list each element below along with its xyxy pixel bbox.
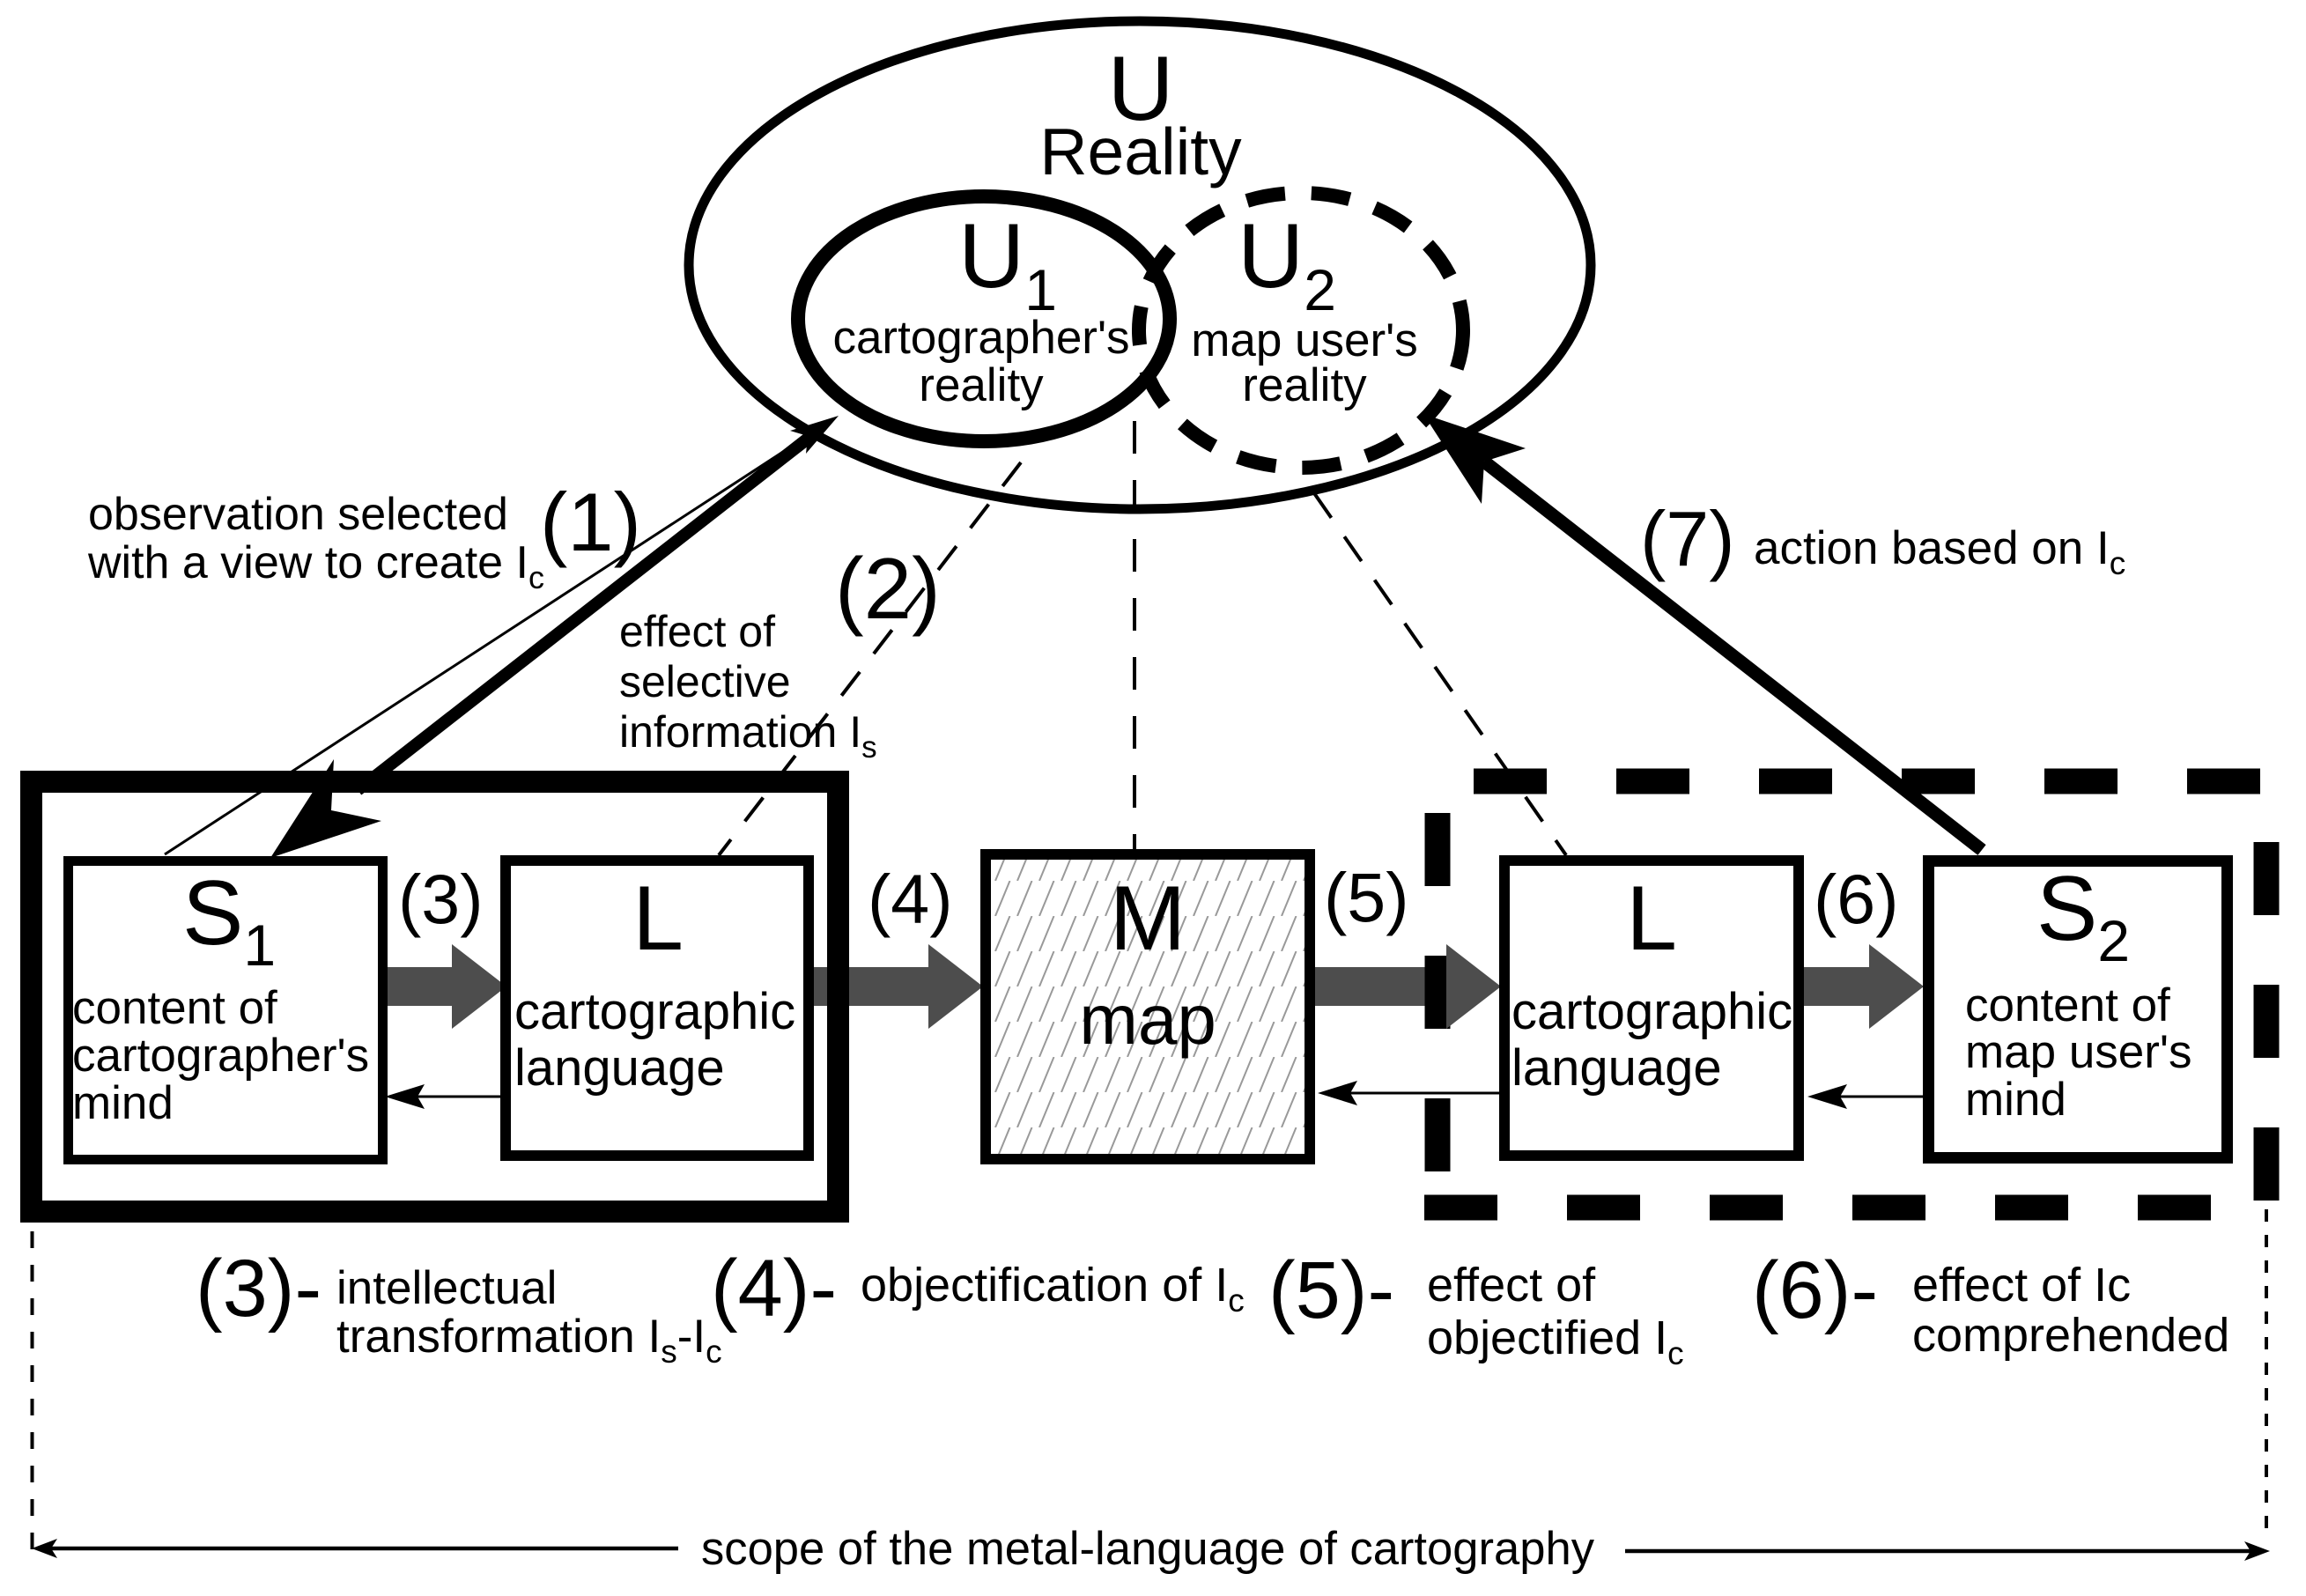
svg-text:effect of: effect of [1427, 1259, 1596, 1312]
svg-text:(5): (5) [1324, 858, 1409, 936]
svg-text:content of: content of [72, 982, 277, 1034]
svg-text:(7): (7) [1640, 495, 1735, 582]
svg-text:comprehended: comprehended [1912, 1309, 2229, 1362]
svg-text:objectification of Ic: objectification of Ic [861, 1259, 1245, 1319]
svg-text:content of: content of [1965, 979, 2170, 1031]
svg-text:effect of: effect of [619, 607, 775, 656]
svg-text:reality: reality [1242, 359, 1367, 411]
svg-text:reality: reality [919, 359, 1044, 411]
svg-text:with a view to create Ic: with a view to create Ic [87, 537, 544, 595]
svg-text:(2): (2) [835, 540, 941, 637]
svg-text:effect of Ic: effect of Ic [1912, 1259, 2131, 1312]
svg-text:(3)-: (3)- [196, 1244, 322, 1334]
svg-text:Reality: Reality [1039, 115, 1242, 188]
svg-text:M: M [1110, 868, 1186, 970]
svg-text:action based on Ic: action based on Ic [1754, 522, 2125, 581]
svg-text:(6): (6) [1814, 860, 1899, 938]
svg-text:map user's: map user's [1965, 1026, 2192, 1078]
svg-text:(6)-: (6)- [1752, 1245, 1878, 1335]
svg-text:observation selected: observation selected [88, 489, 508, 540]
svg-text:(1): (1) [540, 476, 641, 568]
svg-text:information Is: information Is [619, 707, 877, 765]
svg-text:cartographic: cartographic [514, 983, 795, 1040]
svg-text:map: map [1079, 980, 1216, 1059]
svg-text:(4): (4) [868, 860, 953, 938]
svg-text:objectified Ic: objectified Ic [1427, 1312, 1684, 1371]
svg-text:language: language [1511, 1039, 1722, 1097]
svg-text:language: language [514, 1039, 725, 1097]
svg-text:selective: selective [619, 657, 791, 706]
svg-text:cartographer's: cartographer's [72, 1030, 369, 1082]
svg-text:(4)-: (4)- [711, 1244, 837, 1334]
svg-text:cartographer's: cartographer's [832, 312, 1129, 364]
svg-text:(5)-: (5)- [1268, 1245, 1394, 1335]
svg-text:cartographic: cartographic [1511, 983, 1792, 1040]
svg-text:mind: mind [72, 1077, 174, 1129]
svg-text:L: L [1626, 868, 1677, 970]
svg-text:scope of the metal-language of: scope of the metal-language of cartograp… [701, 1523, 1594, 1575]
svg-text:(3): (3) [398, 860, 484, 938]
svg-text:L: L [632, 868, 684, 970]
svg-text:intellectual: intellectual [336, 1262, 557, 1314]
svg-text:mind: mind [1965, 1074, 2066, 1126]
